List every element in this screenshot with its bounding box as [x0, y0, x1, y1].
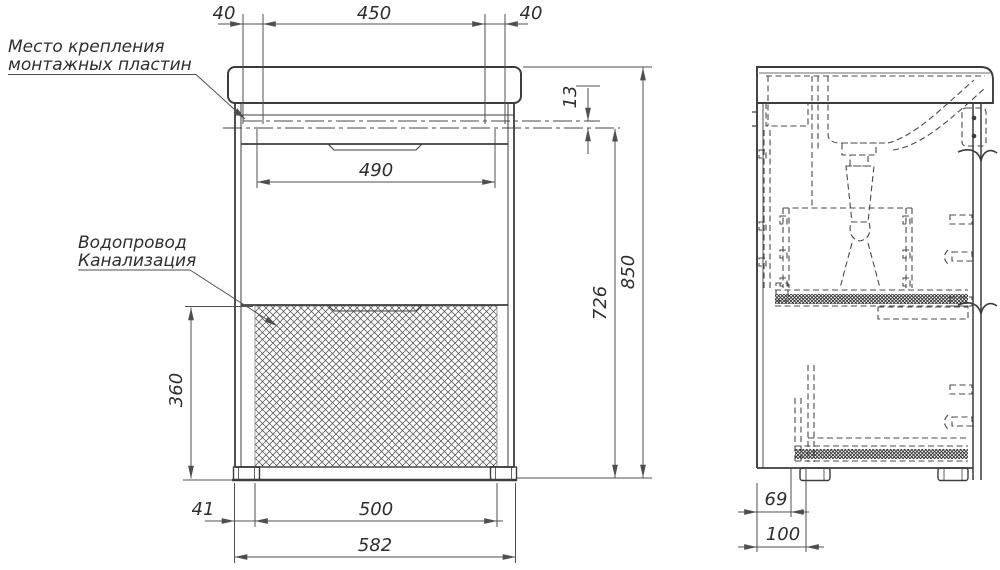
dim-front-offset: 69 — [765, 489, 788, 510]
label-plumbing-line2: Канализация — [78, 251, 196, 271]
dim-service-zone-height: 360 — [166, 373, 187, 407]
dim-front-depth: 100 — [766, 524, 800, 545]
plumbing-service-zone-hatch — [255, 306, 497, 467]
side-hidden-lines — [759, 76, 985, 462]
side-view-drawing — [752, 67, 997, 481]
dim-overall-height: 850 — [618, 255, 639, 289]
label-mounting-plates-line1: Место крепления — [8, 37, 165, 57]
wall-hook-upper — [958, 150, 997, 161]
side-panels — [752, 103, 981, 480]
dim-rim-to-plate: 13 — [560, 86, 581, 109]
dim-offset-left: 40 — [213, 3, 236, 24]
dim-feet-span: 500 — [359, 499, 393, 520]
technical-drawing-vanity-cabinet: 40 450 40 490 13 360 726 850 — [0, 0, 1000, 570]
front-view-drawing — [223, 67, 620, 480]
dim-inner-width: 490 — [359, 160, 393, 181]
mounting-plates-leader — [196, 75, 245, 120]
drawing-svg: 40 450 40 490 13 360 726 850 — [0, 0, 1000, 570]
leader-annotations: Место крепления монтажных пластин Водопр… — [8, 37, 277, 326]
dim-overall-width: 582 — [358, 535, 392, 556]
label-plumbing-line1: Водопровод — [78, 233, 187, 253]
dim-plate-line-to-floor: 726 — [590, 286, 611, 320]
plumbing-leader — [190, 270, 277, 326]
upper-drawer-front — [241, 144, 508, 150]
washbasin-outline — [228, 67, 521, 103]
dim-foot-offset: 41 — [192, 499, 215, 520]
front-feet — [234, 467, 517, 480]
dim-mounting-span: 450 — [357, 3, 391, 24]
side-mounting-plate — [962, 108, 986, 146]
dim-offset-right: 40 — [520, 3, 543, 24]
label-mounting-plates-line2: монтажных пластин — [8, 55, 192, 75]
wall-hook-lower — [958, 303, 997, 314]
side-feet — [800, 468, 968, 481]
side-countertop — [757, 67, 993, 103]
